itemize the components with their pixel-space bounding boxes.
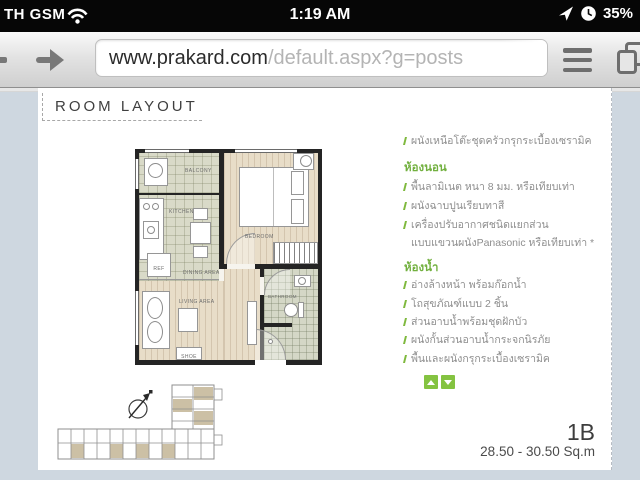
- spec-item: พื้นและผนังกรุกระเบื้องเซรามิค: [404, 350, 550, 367]
- floor-edge: [139, 279, 219, 280]
- url-fade-overlay: [501, 40, 547, 76]
- spec-item: อ่างล้างหน้า พร้อมก๊อกน้ำ: [404, 276, 527, 293]
- shower-drain: [268, 339, 273, 344]
- sink-basin: [147, 226, 155, 234]
- dining-chair: [193, 246, 208, 258]
- sofa-cushion: [147, 321, 163, 343]
- bullet-tick: [403, 336, 407, 344]
- wall: [318, 149, 322, 365]
- address-bar[interactable]: www.prakard.com/default.aspx?g=posts: [95, 39, 548, 77]
- spec-item: ผนังฉาบปูนเรียบทาสี: [404, 197, 504, 214]
- wall: [219, 264, 227, 269]
- wall: [135, 360, 322, 365]
- bullet-tick: [403, 183, 407, 191]
- spec-text: ผนังฉาบปูนเรียบทาสี: [411, 200, 504, 212]
- spec-heading-bedroom: ห้องนอน: [404, 159, 447, 177]
- spec-text: ส่วนอาบน้ำพร้อมชุดฝักบัว: [411, 316, 527, 328]
- spec-item: โถสุขภัณฑ์แบบ 2 ชิ้น: [404, 295, 508, 312]
- room-label-balcony: BALCONY: [185, 168, 212, 174]
- wall: [219, 149, 224, 269]
- room-label-shoe: SHOE: [181, 354, 197, 360]
- tv-console: [247, 301, 257, 345]
- wardrobe: [273, 242, 318, 264]
- room-label-ref: REF: [153, 266, 164, 272]
- stove-burner: [143, 203, 150, 210]
- compass-icon: [129, 390, 153, 418]
- spec-text: พื้นและผนังกรุกระเบื้องเซรามิค: [411, 353, 550, 365]
- entrance-opening: [255, 360, 286, 365]
- spec-item: ส่วนอาบน้ำพร้อมชุดฝักบัว: [404, 313, 527, 330]
- status-time: 1:19 AM: [0, 6, 640, 24]
- bullet-tick: [403, 300, 407, 308]
- dining-chair: [193, 208, 208, 220]
- triangle-up-icon: [427, 380, 435, 385]
- pages-button[interactable]: [617, 42, 640, 76]
- next-unit-button[interactable]: [441, 375, 455, 389]
- sofa-cushion: [147, 297, 163, 319]
- unit-name: 1B: [420, 420, 595, 444]
- window: [145, 149, 189, 153]
- bullet-tick: [403, 281, 407, 289]
- coffee-table: [178, 308, 198, 332]
- floor-plan: BALCONY KITCHEN REF DINING AREA: [135, 149, 322, 365]
- air-conditioner-fan: [300, 155, 312, 167]
- spec-item: ผนังกั้นส่วนอาบน้ำกระจกนิรภัย: [404, 331, 550, 348]
- pillow: [291, 171, 304, 195]
- pillow: [291, 199, 304, 224]
- spec-text: อ่างล้างหน้า พร้อมก๊อกน้ำ: [411, 279, 527, 291]
- location-services-icon: [558, 5, 574, 22]
- safari-browser-window: TH GSM 1:19 AM 35% www.prakard.com/defau…: [0, 0, 640, 480]
- dining-table: [190, 222, 211, 244]
- title-dashed-rule: [42, 93, 43, 121]
- spec-item: ผนังเหนือโต๊ะชุดครัวกรุกระเบื้องเซรามิค: [404, 132, 592, 149]
- spec-item: พื้นลามิเนต หนา 8 มม. หรือเทียบเท่า: [404, 178, 575, 195]
- spec-list: ผนังเหนือโต๊ะชุดครัวกรุกระเบื้องเซรามิค …: [404, 126, 609, 376]
- spec-text: โถสุขภัณฑ์แบบ 2 ชิ้น: [411, 298, 508, 310]
- refrigerator: REF: [147, 253, 171, 277]
- spec-text: ผนังกั้นส่วนอาบน้ำกระจกนิรภัย: [411, 334, 550, 346]
- spec-item: เครื่องปรับอากาศชนิดแยกส่วน: [404, 216, 549, 233]
- spec-heading-bathroom: ห้องน้ำ: [404, 259, 438, 277]
- alarm-clock-icon: [580, 5, 597, 22]
- basin-bowl: [298, 277, 306, 285]
- washing-machine-drum: [148, 163, 163, 178]
- url-domain: www.prakard.com: [109, 47, 268, 69]
- wall: [260, 269, 264, 277]
- toilet-bowl: [284, 303, 298, 317]
- window: [135, 291, 139, 345]
- spec-text: แบบแขวนผนังPanasonic หรือเทียบเท่า *: [411, 237, 594, 249]
- stove-burner: [152, 203, 159, 210]
- forward-arrow-icon: [50, 49, 64, 71]
- content-card: ROOM LAYOUT: [38, 88, 612, 470]
- spec-text: พื้นลามิเนต หนา 8 มม. หรือเทียบเท่า: [411, 181, 575, 193]
- status-bar: TH GSM 1:19 AM 35%: [0, 0, 640, 32]
- wall: [139, 193, 219, 195]
- unit-pager: [424, 375, 455, 389]
- window: [235, 149, 297, 153]
- spec-text: ผนังเหนือโต๊ะชุดครัวกรุกระเบื้องเซรามิค: [411, 135, 592, 147]
- pages-icon: [617, 50, 637, 74]
- section-title: ROOM LAYOUT: [55, 98, 198, 115]
- toilet-tank: [298, 302, 304, 318]
- spec-item-continuation: แบบแขวนผนังPanasonic หรือเทียบเท่า *: [404, 234, 594, 251]
- building-key-plan: [55, 383, 255, 468]
- window: [135, 159, 139, 189]
- shoe-cabinet: SHOE: [176, 347, 202, 360]
- room-label-bedroom: BEDROOM: [245, 234, 274, 240]
- wall: [264, 323, 292, 327]
- unit-info: 1B 28.50 - 30.50 Sq.m: [420, 420, 595, 459]
- reading-list-button[interactable]: [563, 48, 592, 72]
- room-label-living: LIVING AREA: [179, 299, 215, 305]
- bullet-tick: [403, 202, 407, 210]
- unit-area: 28.50 - 30.50 Sq.m: [420, 444, 595, 459]
- web-page: ROOM LAYOUT: [0, 88, 640, 480]
- room-label-bathroom: BATHROOM: [268, 294, 297, 299]
- forward-button[interactable]: [36, 47, 68, 73]
- triangle-down-icon: [444, 380, 452, 385]
- room-label-dining: DINING AREA: [183, 270, 220, 276]
- bullet-tick: [403, 137, 407, 145]
- bullet-tick: [403, 318, 407, 326]
- url-path: /default.aspx?g=posts: [268, 47, 463, 69]
- title-dashed-rule: [42, 120, 202, 121]
- bullet-tick: [403, 355, 407, 363]
- browser-toolbar: www.prakard.com/default.aspx?g=posts: [0, 32, 640, 88]
- bed-fold-line: [273, 168, 274, 226]
- room-label-kitchen: KITCHEN: [169, 209, 194, 215]
- back-button[interactable]: [0, 57, 7, 63]
- battery-percent: 35%: [603, 5, 633, 22]
- spec-text: เครื่องปรับอากาศชนิดแยกส่วน: [411, 219, 549, 231]
- bullet-tick: [403, 221, 407, 229]
- previous-unit-button[interactable]: [424, 375, 438, 389]
